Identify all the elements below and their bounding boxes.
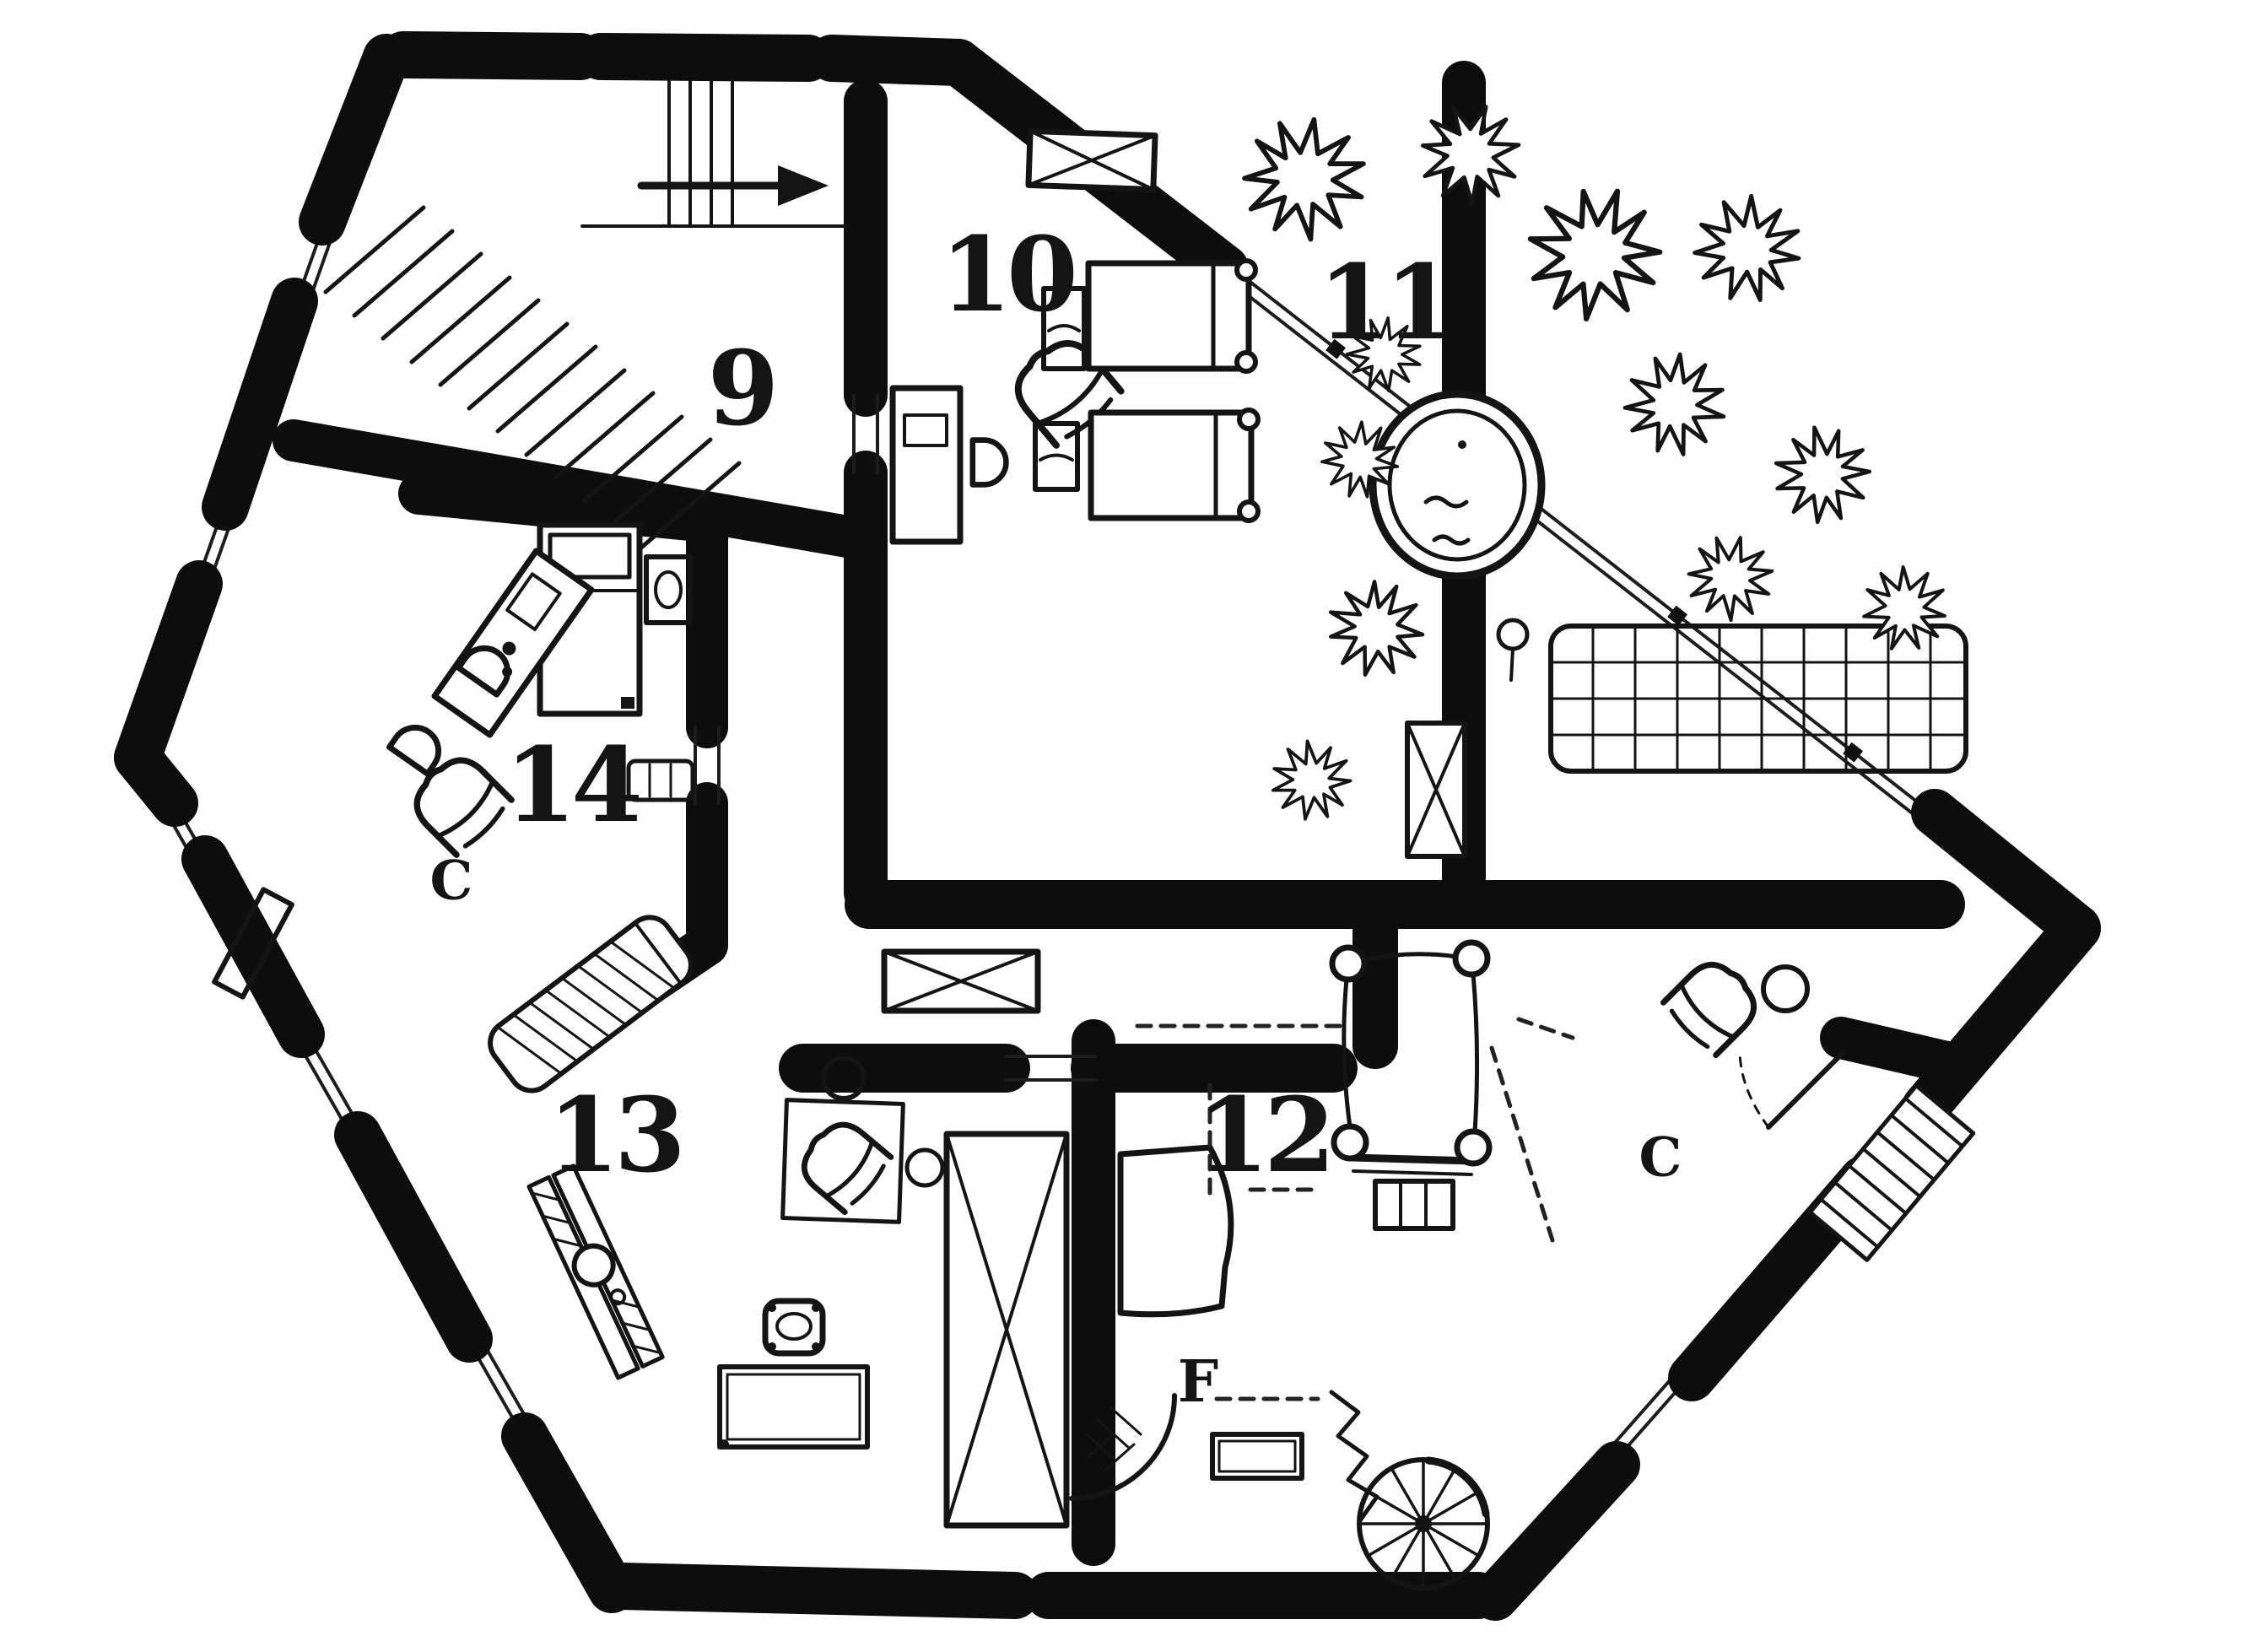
hot-tub — [1373, 394, 1541, 576]
room-14-label: 14 — [505, 724, 639, 845]
hall-closet-x — [884, 952, 1038, 1011]
fireplace-label: F — [1178, 1348, 1218, 1416]
floor-plan-canvas: 9 — [0, 0, 2246, 1652]
room-12-label: 12 — [1197, 1074, 1331, 1196]
closet-12-label: C — [1639, 1126, 1682, 1190]
tall-cabinet-x — [947, 1134, 1066, 1525]
bed — [1091, 410, 1258, 521]
tall-chest-x — [1407, 723, 1465, 856]
room-10-label: 10 — [940, 213, 1074, 335]
room-11-label: 11 — [1318, 241, 1451, 363]
floor-plan-page: 9 — [0, 0, 2246, 1652]
bed — [1088, 261, 1255, 371]
spiral-staircase — [1359, 1460, 1487, 1588]
paper — [0, 0, 2246, 1652]
room-13-label: 13 — [548, 1074, 681, 1196]
room-9-label: 9 — [708, 327, 775, 449]
closet-14-label: C — [430, 850, 473, 913]
wardrobe-x — [1029, 131, 1155, 189]
corridor — [884, 952, 1038, 1011]
